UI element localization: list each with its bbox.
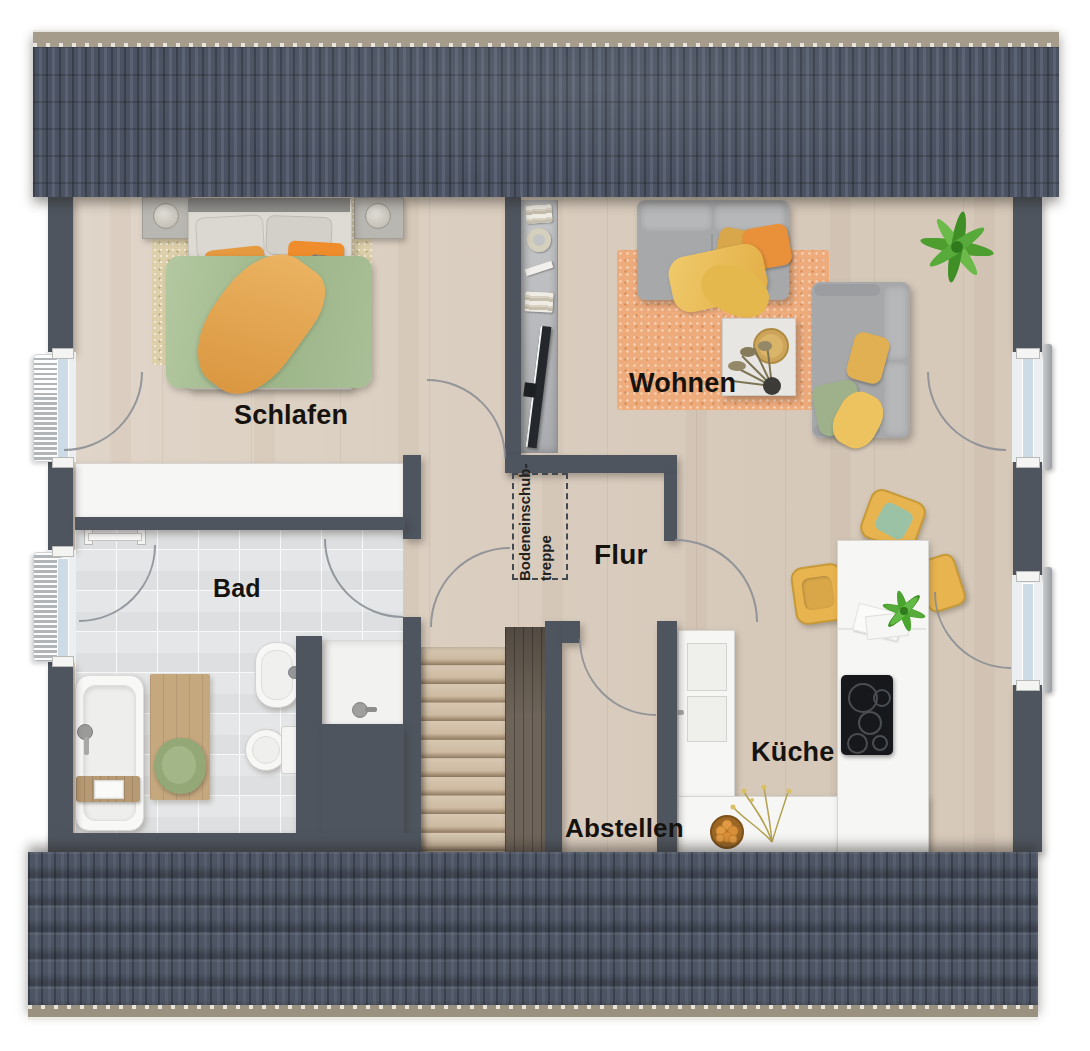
window-swing-kueche (935, 592, 1011, 668)
room-label-abstellen: Abstellen (565, 813, 684, 844)
roof-corrugation (33, 47, 1059, 197)
room-label-schlafen: Schlafen (234, 400, 348, 431)
roof-eave-strip (28, 1005, 1038, 1020)
door-swing-abstellen (580, 639, 656, 715)
room-label-wohnen: Wohnen (629, 368, 736, 399)
room-label-kueche: Küche (751, 737, 835, 768)
room-label-flur: Flur (594, 539, 648, 571)
roof-top (33, 30, 1059, 197)
door-swing-stairs (431, 548, 510, 627)
window-swing-bad (79, 545, 155, 621)
roof-tile-field (28, 852, 1038, 1005)
fruit-bowl-icon (711, 816, 743, 848)
window-swing-wohnen (928, 372, 1006, 450)
door-swing-bad (325, 539, 403, 617)
island-plant-icon (882, 590, 927, 633)
window-swing-schlafen (64, 372, 142, 450)
palm-plant-icon (919, 210, 994, 283)
room-label-bad: Bad (213, 574, 261, 603)
door-swing-schlafen (427, 380, 505, 458)
floor-plan-canvas: Bodeneinschub- treppe Schlafen Wohnen Ba… (0, 0, 1090, 1051)
attic-hatch-label: Bodeneinschub- treppe (514, 475, 566, 581)
door-swing-flur-east (675, 540, 757, 622)
roof-ridge-strip (33, 30, 1059, 47)
attic-hatch-outline: Bodeneinschub- treppe (512, 473, 568, 580)
flower-buds-icon (731, 785, 792, 810)
roof-bottom (28, 852, 1038, 1020)
